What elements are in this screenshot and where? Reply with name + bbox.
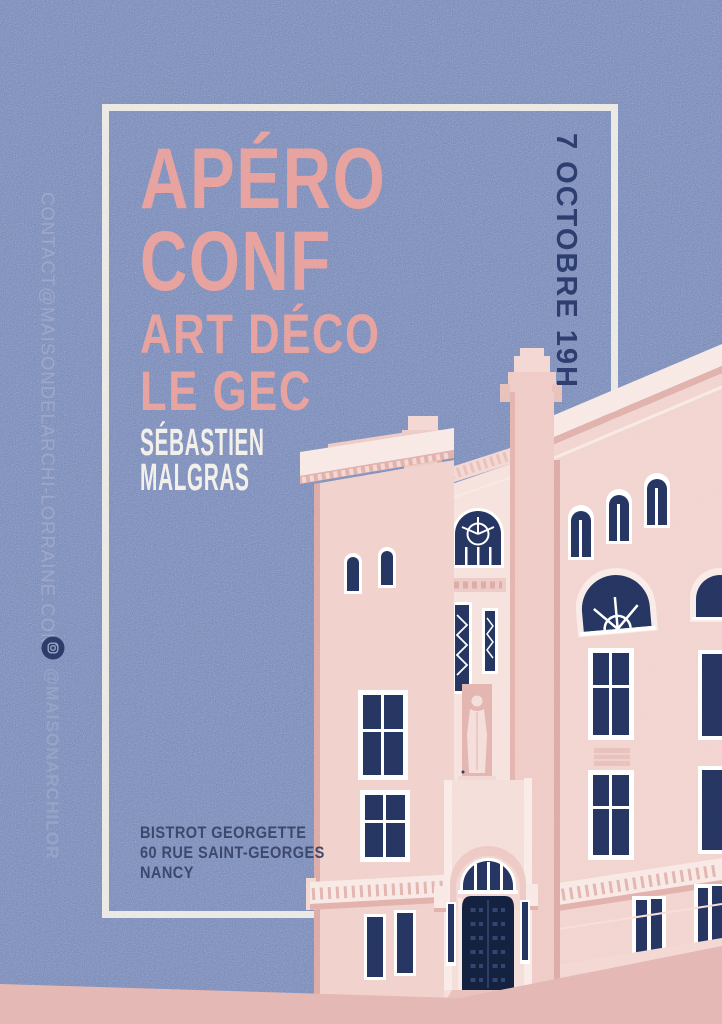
instagram-handle-vertical: @MAISONARCHILOR <box>43 668 61 859</box>
entrance-door <box>458 896 514 990</box>
venue-street: 60 RUE SAINT-GEORGES <box>140 843 325 863</box>
statue-niche <box>458 684 496 784</box>
left-tower <box>300 428 458 1024</box>
venue-city: NANCY <box>140 863 325 883</box>
venue-block: BISTROT GEORGETTE 60 RUE SAINT-GEORGES N… <box>140 823 325 883</box>
event-date-vertical: 7 OCTOBRE 19H <box>551 133 580 389</box>
venue-name: BISTROT GEORGETTE <box>140 823 325 843</box>
instagram-icon <box>41 636 65 660</box>
subtitle-line-1: ART DÉCO <box>140 306 381 362</box>
speaker-last-name: MALGRAS <box>140 459 250 497</box>
right-wing-facade <box>552 344 722 1024</box>
rose-window <box>452 508 504 568</box>
event-poster: APÉRO CONF ART DÉCO LE GEC SÉBASTIEN MAL… <box>0 0 722 1024</box>
subtitle-line-2: LE GEC <box>140 363 312 419</box>
contact-email-vertical: CONTACT@MAISONDELARCHI-LORRAINE.COM <box>38 192 57 649</box>
title-line-2: CONF <box>140 219 332 303</box>
title-line-1: APÉRO <box>140 136 386 222</box>
